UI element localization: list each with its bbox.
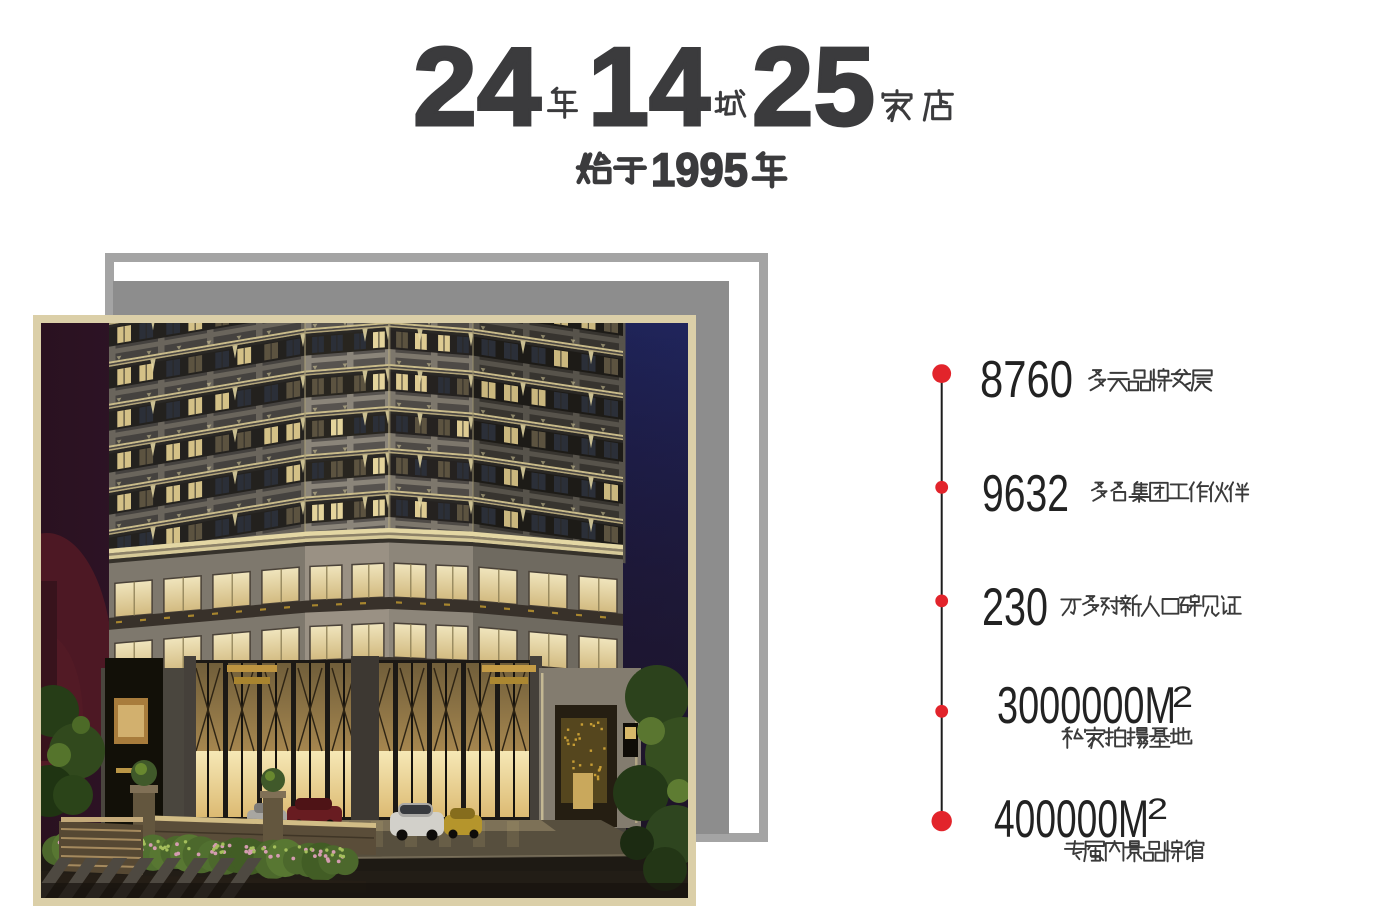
- svg-text:24: 24: [413, 25, 541, 149]
- svg-text:9632: 9632: [982, 465, 1069, 523]
- svg-text:400000M: 400000M: [994, 790, 1149, 849]
- svg-text:230: 230: [982, 578, 1048, 637]
- svg-text:2: 2: [1172, 681, 1193, 714]
- svg-text:1995: 1995: [651, 143, 748, 196]
- svg-text:25: 25: [752, 25, 875, 149]
- svg-text:2: 2: [1147, 793, 1168, 826]
- svg-text:8760: 8760: [980, 351, 1073, 409]
- svg-text:3000000M: 3000000M: [997, 677, 1176, 735]
- svg-text:14: 14: [588, 25, 710, 149]
